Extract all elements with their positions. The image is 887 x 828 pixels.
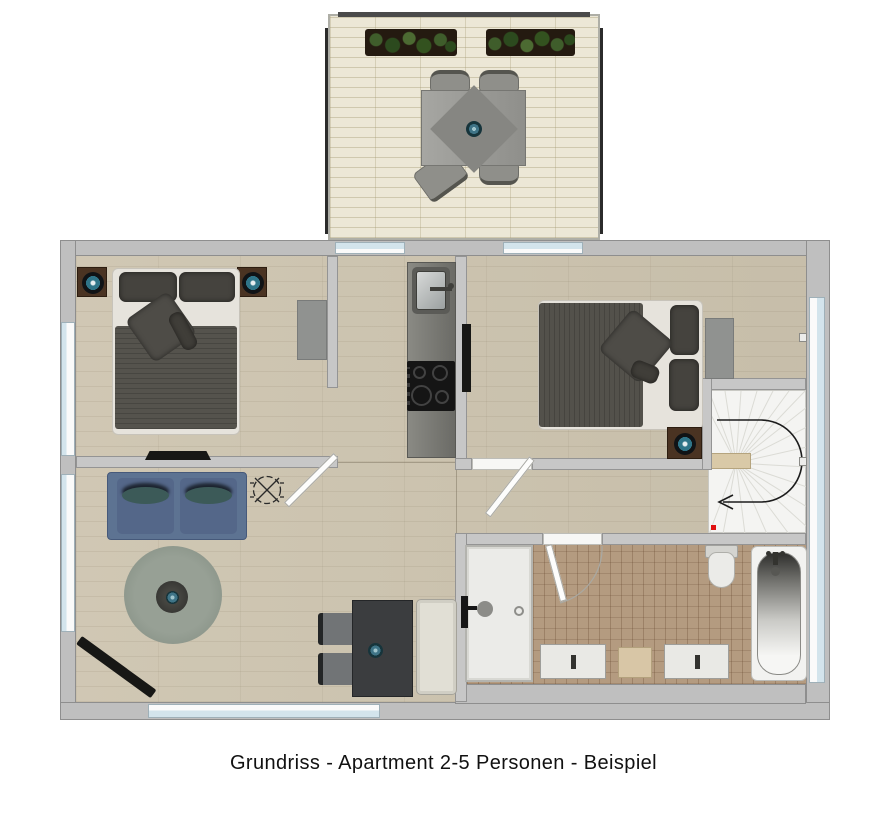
- stairs-left-wall: [702, 378, 712, 470]
- balcony-planter-left: [365, 29, 457, 56]
- window-left-bedroom1: [61, 322, 75, 456]
- balcony-door-window-right: [503, 242, 583, 254]
- window-bottom-living: [148, 704, 380, 718]
- vanity-left-faucet: [571, 655, 576, 669]
- bedroom1-nightstand-right: [237, 267, 267, 297]
- shower-head: [477, 601, 493, 617]
- bathroom-top-wall-right: [602, 533, 806, 545]
- sofa-cushion-right: [180, 478, 237, 534]
- bedroom2-tv: [462, 324, 471, 392]
- ceiling-light-symbol: [250, 473, 284, 507]
- bedroom1-lamp-right: [242, 272, 264, 294]
- floor-plan: Grundriss - Apartment 2-5 Personen - Bei…: [0, 0, 887, 828]
- coffee-table-bowl: [166, 591, 179, 604]
- bedroom1-bed: [112, 268, 240, 435]
- bedroom1-nightstand-left: [77, 267, 107, 297]
- bathtub-tap-right: [780, 551, 785, 556]
- sofa-seatpad-left: [122, 487, 169, 504]
- bedroom2-lamp: [674, 433, 696, 455]
- patio-chair-top-right: [479, 70, 519, 92]
- bathtub-spout: [773, 552, 778, 565]
- bedroom2-bottom-wall-left: [455, 458, 472, 470]
- stairs-top-wall: [702, 378, 806, 390]
- window-left-living: [61, 474, 75, 632]
- cooktop-knobs: [407, 367, 410, 405]
- bedroom1-lamp-left: [82, 272, 104, 294]
- bathtub: [751, 546, 807, 681]
- bathroom-top-wall-left: [455, 533, 543, 545]
- bedroom2-dresser: [705, 318, 734, 379]
- balcony-planter-right: [486, 29, 575, 56]
- bathtub-drain: [771, 567, 780, 576]
- bathroom-wood-cabinet: [618, 647, 652, 678]
- bathroom-vanity-right: [664, 644, 729, 679]
- bedroom2-pillow-bottom: [669, 359, 699, 411]
- patio-table: [421, 90, 526, 166]
- bedroom2-bottom-wall-right: [532, 458, 712, 470]
- cooktop-burner-back-right: [432, 365, 448, 381]
- patio-chair-bottom-right: [479, 163, 519, 185]
- bathtub-tap-left: [766, 551, 771, 556]
- balcony: [328, 14, 600, 240]
- stair-wood-tread: [710, 453, 751, 469]
- bedroom1-right-wall: [327, 256, 338, 388]
- shower-fixture-arm: [466, 606, 477, 610]
- bedroom1-pillow-right: [179, 272, 235, 302]
- staircase: [708, 390, 806, 533]
- patio-chair-top-left: [430, 70, 470, 92]
- dining-table: [352, 600, 413, 697]
- window-right-full-height: [809, 297, 825, 683]
- cooktop-burner-front-left: [411, 385, 432, 406]
- window-handle-lower: [799, 457, 807, 466]
- sofa: [107, 472, 247, 540]
- window-handle-upper: [799, 333, 807, 342]
- bathroom-vanity-left: [540, 644, 606, 679]
- dining-bench: [416, 599, 457, 695]
- floor-boundary-line-v: [456, 470, 457, 533]
- bathroom-door-swing-arc: [545, 540, 609, 610]
- bedroom1-tv: [145, 451, 211, 460]
- balcony-railing-left: [325, 28, 328, 234]
- bedroom2-pillow-top: [670, 305, 699, 355]
- cooktop-burner-back-left: [413, 366, 426, 379]
- patio-table-bowl: [466, 121, 482, 137]
- plan-caption: Grundriss - Apartment 2-5 Personen - Bei…: [0, 752, 887, 775]
- cooktop-burner-front-right: [435, 390, 449, 404]
- balcony-door-window-left: [335, 242, 405, 254]
- shower-fixture: [461, 596, 468, 628]
- exterior-wall-top: [60, 240, 830, 256]
- shower-drain: [514, 606, 524, 616]
- bathroom-bottom-wall: [455, 684, 806, 704]
- kitchen-faucet-handle: [448, 283, 454, 289]
- vanity-right-faucet: [695, 655, 700, 669]
- bedroom1-dresser: [297, 300, 327, 360]
- balcony-railing-top: [338, 12, 590, 17]
- balcony-railing-right: [600, 28, 603, 234]
- sofa-cushion-left: [117, 478, 174, 534]
- toilet-bowl: [708, 552, 735, 588]
- kitchen-sink: [412, 267, 450, 314]
- sofa-seatpad-right: [185, 487, 232, 504]
- bedroom2-nightstand: [667, 427, 702, 459]
- kitchen-cooktop: [407, 361, 455, 411]
- bedroom2-bed: [538, 300, 703, 430]
- dining-table-bowl: [368, 643, 383, 658]
